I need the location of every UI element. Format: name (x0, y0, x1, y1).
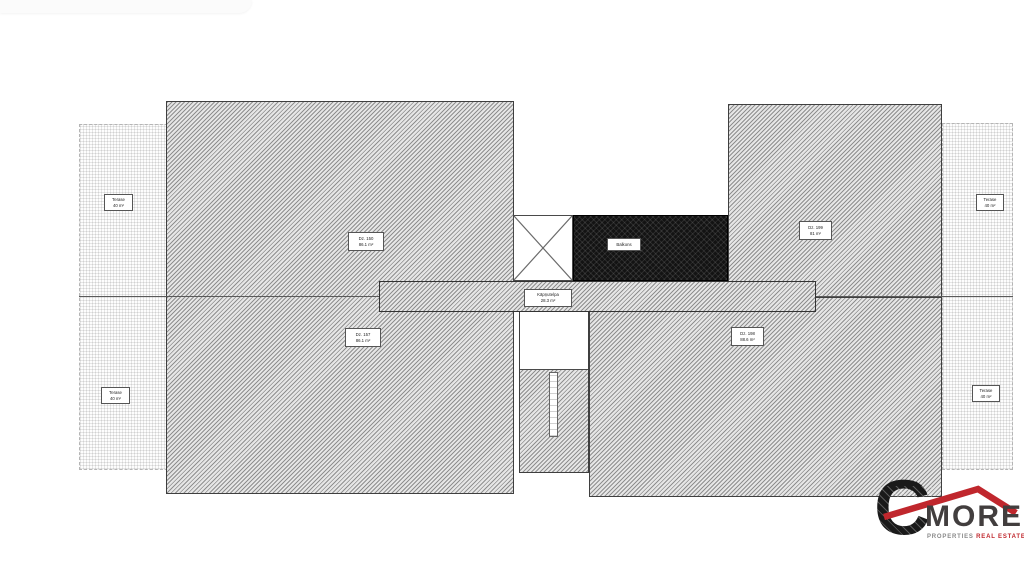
room-label-area: 40 m² (985, 203, 996, 209)
top-left-card (0, 0, 252, 13)
room-label-stair-corridor: Kāpņutelpa 28.3 m² (524, 289, 572, 307)
room-label-area: 40 m² (113, 203, 124, 209)
room-label-upper-right: Dz. 199 81 m² (799, 221, 832, 240)
terrace-left (79, 124, 168, 470)
room-label-balcony: Balkons (607, 238, 641, 251)
room-label-lower-left: Dz. 157 86.1 m² (345, 328, 381, 347)
logo-tagline: PROPERTIES REAL ESTATES (927, 534, 1024, 540)
logo-tagline-properties: PROPERTIES (927, 534, 974, 540)
logo-word: MORE (925, 502, 1023, 532)
room-label-area: 88.6 m² (740, 337, 755, 343)
room-label-upper-left: Dz. 150 86.1 m² (348, 232, 384, 251)
room-label-area: 40 m² (981, 394, 992, 400)
company-logo: C MORE PROPERTIES REAL ESTATES (868, 484, 1024, 562)
room-label-name: Balkons (616, 242, 631, 248)
room-label-area: 86.1 m² (359, 242, 374, 248)
logo-tagline-realestates: REAL ESTATES (976, 534, 1024, 540)
room-label-terrace-top-right: Terase 40 m² (976, 194, 1004, 211)
stair-shaft (513, 215, 573, 281)
room-label-terrace-top-left: Terase 40 m² (104, 194, 133, 211)
room-label-area: 40 m² (110, 396, 121, 402)
room-label-terrace-bottom-left: Terase 40 m² (101, 387, 130, 404)
stair-corridor-bar (379, 281, 816, 312)
room-label-area: 81 m² (810, 231, 821, 237)
room-label-terrace-bottom-right: Terase 40 m² (972, 385, 1000, 402)
floor-plan-page: Dz. 150 86.1 m² Dz. 157 86.1 m² Dz. 199 … (0, 0, 1024, 562)
stair-landing (520, 312, 588, 370)
wall-section (549, 372, 558, 437)
balcony-block (573, 215, 728, 281)
x-brace-icon (514, 216, 572, 280)
room-label-lower-right: Dz. 198 88.6 m² (731, 327, 764, 346)
room-label-area: 86.1 m² (356, 338, 371, 344)
roof-slab-right-upper (728, 104, 942, 298)
room-label-area: 28.3 m² (541, 298, 556, 304)
